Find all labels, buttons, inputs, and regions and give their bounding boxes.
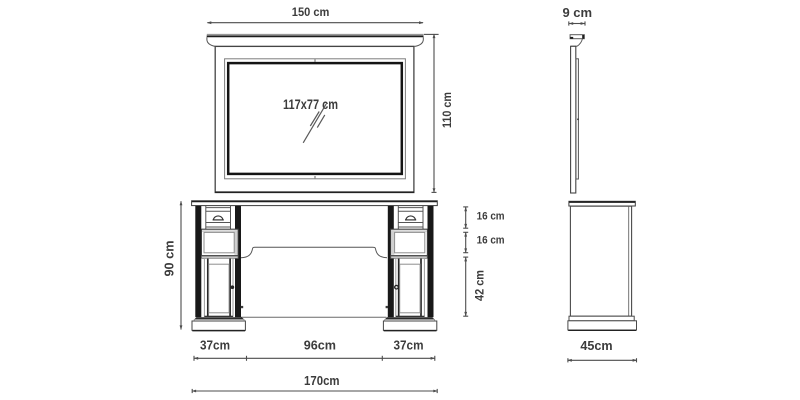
svg-text:45cm: 45cm: [580, 339, 612, 353]
svg-text:37cm: 37cm: [394, 339, 424, 353]
svg-text:90 cm: 90 cm: [162, 241, 177, 277]
svg-text:117x77 cm: 117x77 cm: [283, 96, 338, 112]
svg-text:42 cm: 42 cm: [475, 270, 487, 301]
svg-text:170cm: 170cm: [304, 374, 340, 388]
svg-text:9 cm: 9 cm: [562, 5, 592, 20]
svg-text:16 cm: 16 cm: [477, 234, 505, 246]
svg-text:110 cm: 110 cm: [442, 92, 454, 128]
svg-text:96cm: 96cm: [304, 339, 336, 353]
svg-text:16 cm: 16 cm: [477, 211, 505, 223]
svg-text:37cm: 37cm: [200, 339, 230, 353]
svg-text:150 cm: 150 cm: [292, 7, 330, 19]
